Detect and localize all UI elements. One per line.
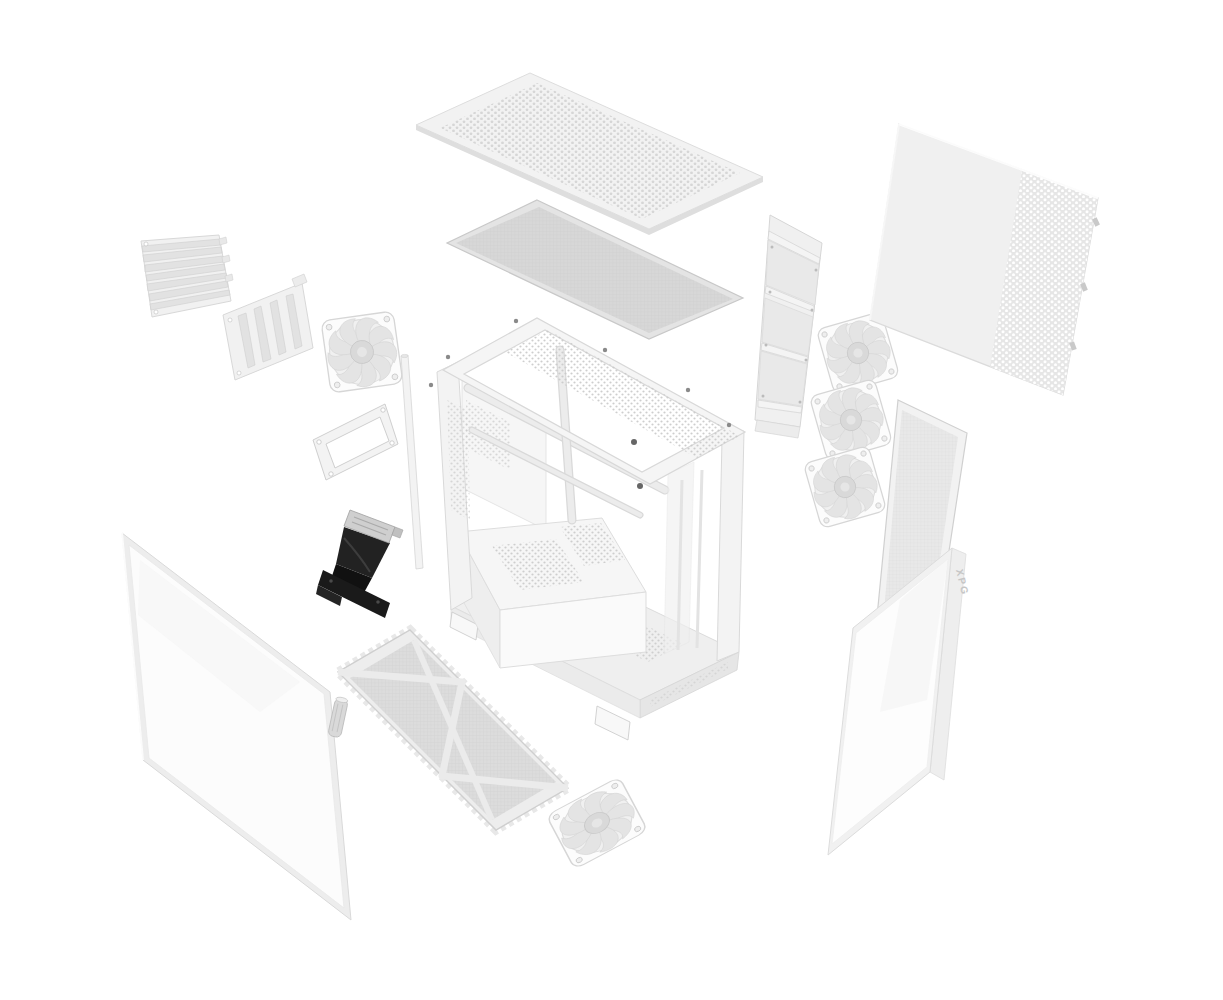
- chassis-right-pillar: [717, 431, 744, 661]
- vertical-gpu-bracket: [223, 274, 313, 380]
- pcie-riser-cable: [316, 510, 403, 618]
- support-rod: [401, 354, 423, 569]
- product-render-canvas: XPG: [0, 0, 1223, 1000]
- top-dust-filter: [447, 200, 743, 339]
- tempered-glass-panel-left: [122, 533, 351, 920]
- fan-stack-fan-3: [800, 442, 890, 532]
- fan-mount-recesses: [758, 240, 819, 406]
- top-exhaust-panel: [416, 73, 763, 235]
- io-bracket-frame: [313, 404, 398, 480]
- pci-slot-bracket: [141, 235, 233, 317]
- chassis-foot-front: [595, 706, 630, 740]
- side-panel-solid: [870, 124, 1100, 395]
- rear-fan: [318, 308, 407, 397]
- tempered-glass-panel-right: XPG: [828, 548, 971, 855]
- main-chassis: [429, 318, 745, 740]
